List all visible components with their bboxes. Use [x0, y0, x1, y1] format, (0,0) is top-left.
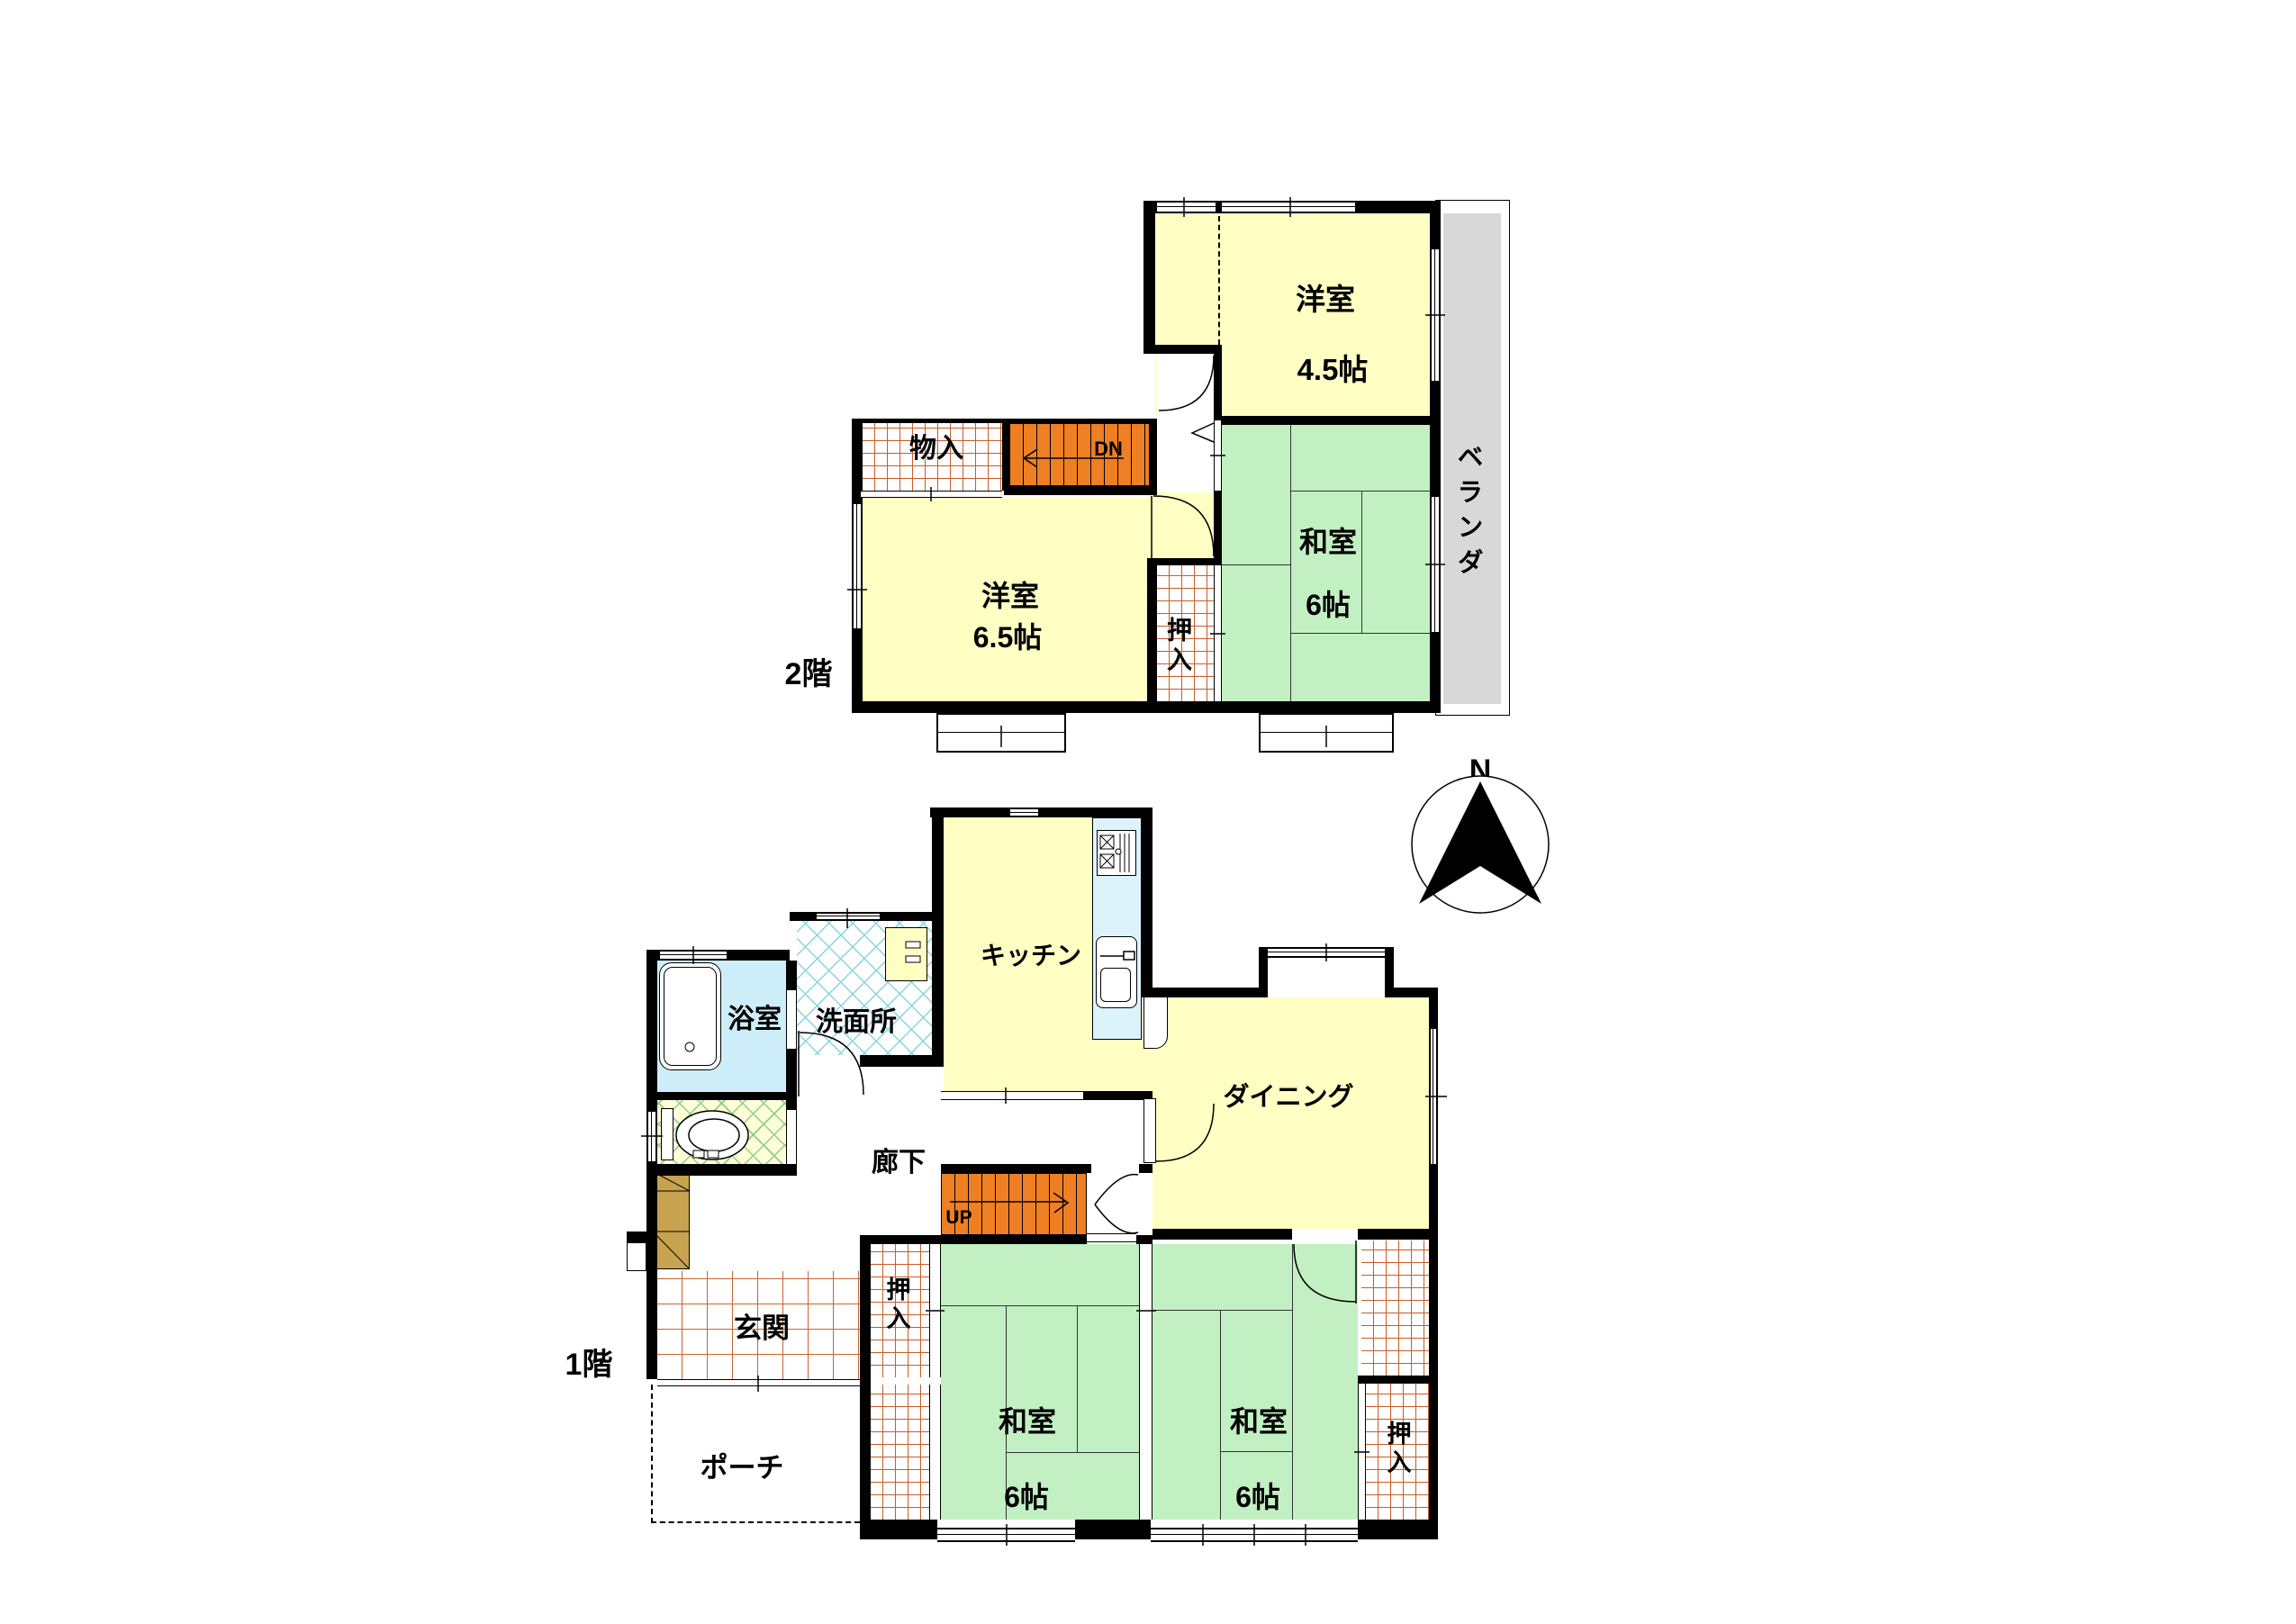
double-door-fan [1095, 1204, 1138, 1233]
double-door-fan [1095, 1175, 1138, 1204]
cabinet-diagonal [654, 1232, 690, 1269]
vanity-faucet [906, 956, 920, 962]
door-swing-marker [1192, 423, 1214, 442]
stair-arrowhead [1053, 1193, 1068, 1213]
toilet-seat [689, 1119, 739, 1151]
floor-plan-canvas: 2階 洋室 4.5帖 和室 6帖 洋室 6.5帖 物入 押入 ベランダ DN [0, 0, 2296, 1624]
door-arc [1159, 356, 1214, 411]
plan-annotations [0, 0, 2296, 1624]
door-arc [1294, 1244, 1356, 1302]
door-arc [1156, 1104, 1214, 1161]
cabinet-diagonal [654, 1172, 690, 1191]
bathtub-drain [685, 1042, 694, 1051]
stove-knob [1116, 849, 1121, 854]
faucet-base [1124, 952, 1134, 960]
toilet-detail [708, 1150, 719, 1158]
toilet-detail [693, 1150, 704, 1158]
door-arc [800, 1033, 863, 1095]
vanity-faucet [906, 942, 920, 948]
north-compass-icon [1412, 776, 1549, 913]
door-arc [1153, 496, 1214, 556]
